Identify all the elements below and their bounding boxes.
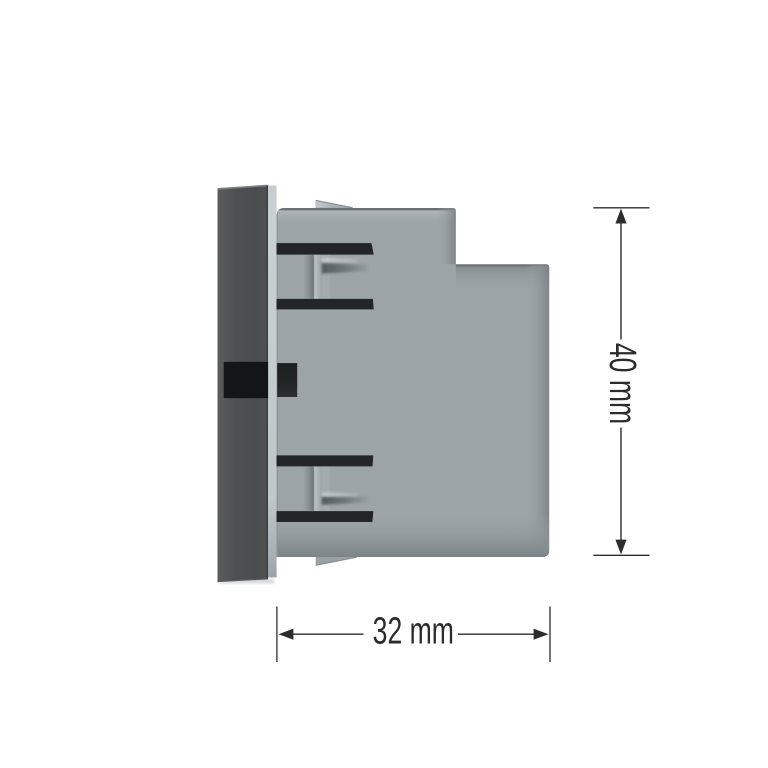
svg-text:32 mm: 32 mm: [373, 609, 454, 652]
svg-text:40 mm: 40 mm: [602, 343, 645, 424]
